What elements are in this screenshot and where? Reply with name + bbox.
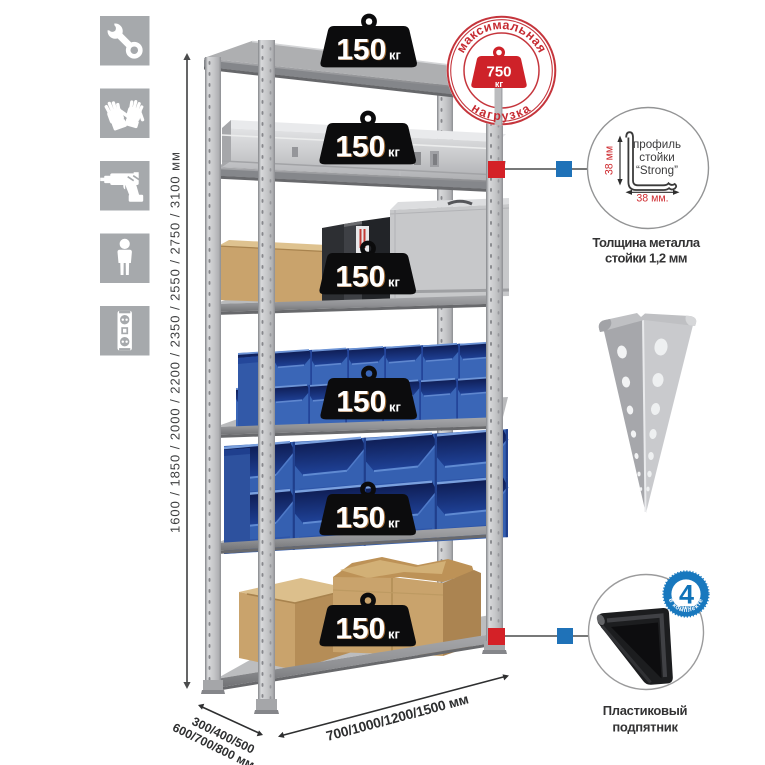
svg-text:“Strong”: “Strong” [636, 164, 678, 177]
svg-text:профиль: профиль [633, 138, 681, 151]
svg-text:Пластиковый: Пластиковый [603, 703, 688, 718]
svg-text:Толщина металла: Толщина металла [592, 235, 700, 250]
svg-text:38 мм: 38 мм [604, 146, 616, 175]
svg-text:750: 750 [486, 64, 511, 81]
svg-text:38 мм.: 38 мм. [636, 193, 668, 205]
svg-text:стойки 1,2 мм: стойки 1,2 мм [605, 251, 687, 266]
svg-text:кг: кг [495, 79, 504, 89]
svg-text:стойки: стойки [639, 151, 674, 164]
svg-text:1600 / 1850 / 2000 / 2200 / 23: 1600 / 1850 / 2000 / 2200 / 2350 / 2550 … [167, 151, 182, 533]
svg-text:подпятник: подпятник [612, 720, 678, 735]
